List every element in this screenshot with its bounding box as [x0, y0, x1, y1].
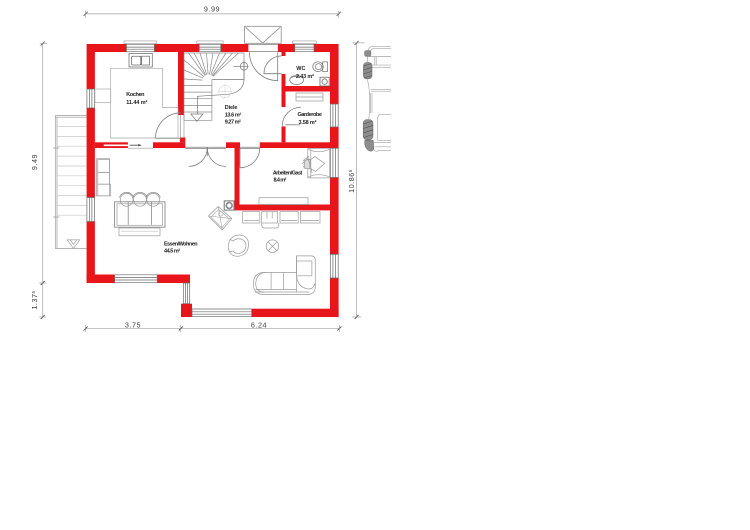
svg-text:9.27 m²: 9.27 m²	[225, 119, 241, 126]
svg-text:Garderobe: Garderobe	[298, 112, 322, 118]
svg-text:WC: WC	[296, 66, 305, 72]
svg-text:Essen/Wohnen: Essen/Wohnen	[164, 241, 198, 247]
svg-text:11.44 m²: 11.44 m²	[126, 99, 147, 106]
svg-text:13.6 m²: 13.6 m²	[225, 111, 242, 118]
svg-text:6.24: 6.24	[251, 321, 267, 330]
svg-text:9.99: 9.99	[204, 4, 220, 13]
svg-text:3.75: 3.75	[125, 321, 141, 330]
svg-text:8.4 m²: 8.4 m²	[274, 176, 287, 183]
svg-text:9.49: 9.49	[30, 154, 39, 170]
svg-text:Arbeiten/Gast: Arbeiten/Gast	[273, 171, 303, 177]
svg-text:Kochen: Kochen	[126, 92, 145, 98]
svg-text:10.865: 10.865	[347, 169, 356, 193]
svg-text:Diele: Diele	[225, 105, 238, 111]
svg-text:44.5 m²: 44.5 m²	[164, 248, 180, 255]
svg-text:2.43 m²: 2.43 m²	[296, 73, 314, 80]
svg-text:3.58 m²: 3.58 m²	[299, 119, 317, 126]
